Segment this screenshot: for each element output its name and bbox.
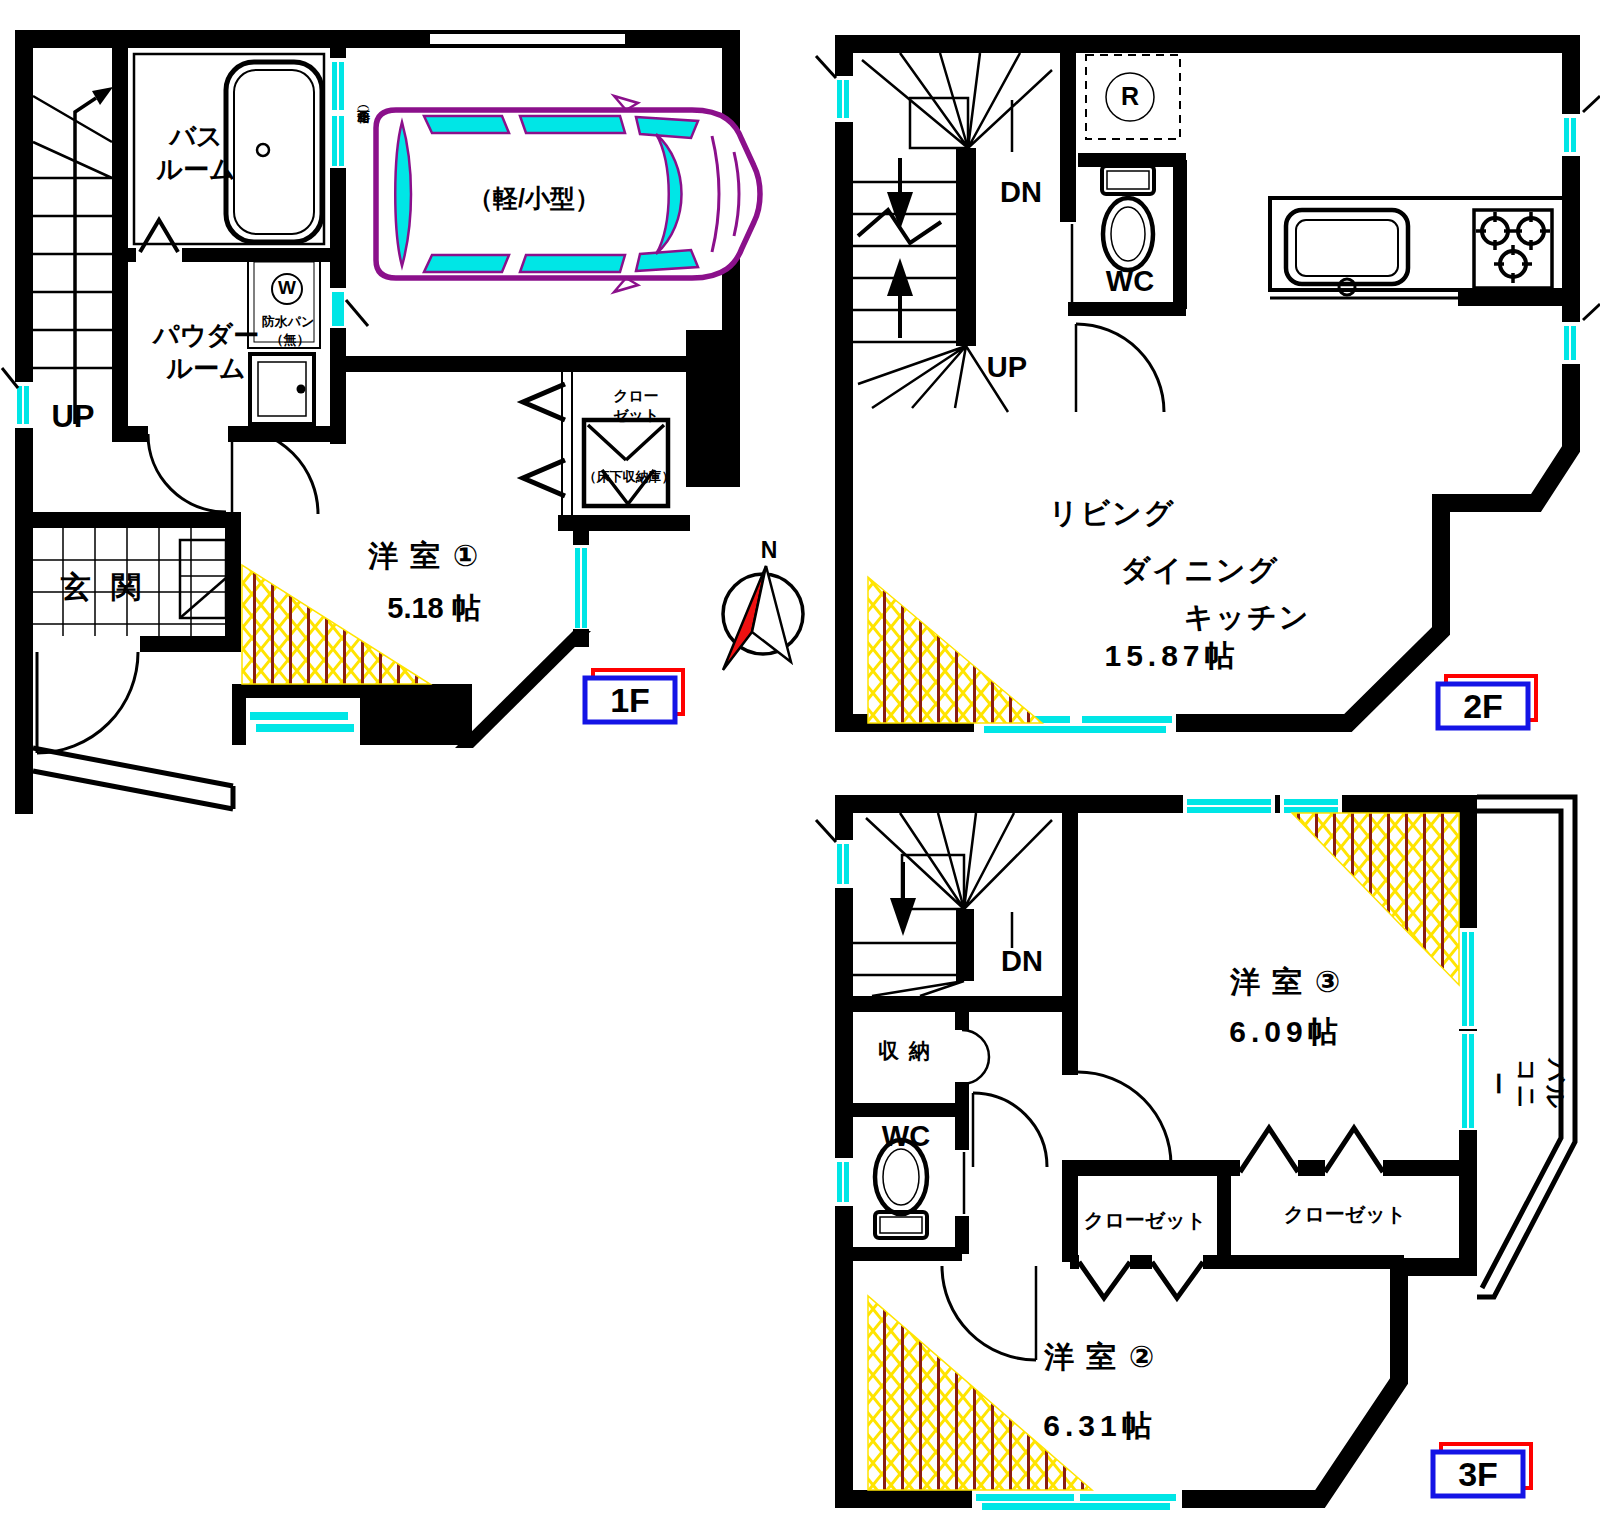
washer-symbol-label: W bbox=[278, 276, 296, 300]
balcony-outline bbox=[1477, 797, 1575, 1297]
stairs-down-label-2f: DN bbox=[1000, 174, 1042, 210]
closet-right-label: クローゼット bbox=[1284, 1202, 1406, 1227]
closet-left-label: クローゼット bbox=[1084, 1208, 1206, 1233]
room1-label: 洋 室 ① bbox=[368, 537, 480, 575]
closet-door-marks bbox=[523, 384, 565, 496]
floor-1f-plan bbox=[2, 30, 803, 814]
entrance-porch-steps bbox=[33, 748, 233, 809]
storage-label: 収 納 bbox=[878, 1038, 932, 1064]
washer-pan-none-label: （無） bbox=[271, 332, 310, 348]
stairs-up-label-2f: UP bbox=[987, 349, 1027, 385]
ldk-area-label: 15.87帖 bbox=[1104, 637, 1239, 675]
ldk-label-line1: リビング bbox=[1049, 495, 1176, 531]
balcony-label: バルコニー bbox=[1484, 1049, 1570, 1122]
room2-label: 洋 室 ② bbox=[1044, 1338, 1156, 1376]
angled-wall-1f bbox=[455, 631, 591, 748]
bath-folding-door-icon bbox=[140, 220, 178, 252]
stairs-up-label-1f: UP bbox=[51, 398, 94, 437]
ldk-label-line3: キッチン bbox=[1184, 599, 1311, 635]
stair-arrow-1f bbox=[92, 87, 113, 105]
floor-badge-1f: 1F bbox=[610, 679, 650, 722]
underfloor-storage-label: （床下収納庫） bbox=[584, 469, 675, 485]
wc-label-3f: WC bbox=[882, 1118, 930, 1154]
wc-label-2f: WC bbox=[1106, 263, 1154, 299]
room3-label: 洋 室 ③ bbox=[1230, 963, 1342, 1001]
stairs-1f bbox=[33, 87, 113, 424]
floor-badge-3f: 3F bbox=[1458, 1453, 1498, 1496]
bathroom-label: バス ルーム bbox=[156, 120, 235, 185]
floor-badge-2f: 2F bbox=[1463, 685, 1503, 728]
floorplan-drawing bbox=[0, 0, 1600, 1518]
room2-area-label: 6.31帖 bbox=[1043, 1407, 1156, 1445]
washer-pan-label: 防水パン bbox=[262, 314, 315, 330]
car-space-label: （軽/小型） bbox=[468, 183, 600, 214]
bathtub-icon bbox=[226, 62, 322, 242]
powder-room-label: パウダー ルーム bbox=[153, 319, 259, 384]
entrance-label: 玄 関 bbox=[61, 568, 147, 606]
compass-icon bbox=[723, 566, 803, 670]
room1-area-label: 5.18 帖 bbox=[387, 590, 481, 626]
floorplan-canvas: バス ルーム パウダー ルーム UP 玄 関 洋 室 ① 5.18 帖 クロー … bbox=[0, 0, 1600, 1518]
powder-room-door-arc bbox=[148, 434, 226, 512]
room3-area-label: 6.09帖 bbox=[1229, 1013, 1342, 1051]
closet-label-1f: クロー ゼット bbox=[613, 387, 659, 425]
compass-north-label: N bbox=[761, 536, 778, 565]
refrigerator-symbol-label: R bbox=[1121, 81, 1139, 112]
washbasin-icon bbox=[250, 354, 314, 424]
ldk-label-line2: ダイニング bbox=[1121, 552, 1279, 588]
garage-shutter-opening bbox=[430, 34, 625, 44]
stairs-down-label-3f: DN bbox=[1001, 943, 1043, 979]
entrance-door-arc bbox=[37, 652, 138, 753]
